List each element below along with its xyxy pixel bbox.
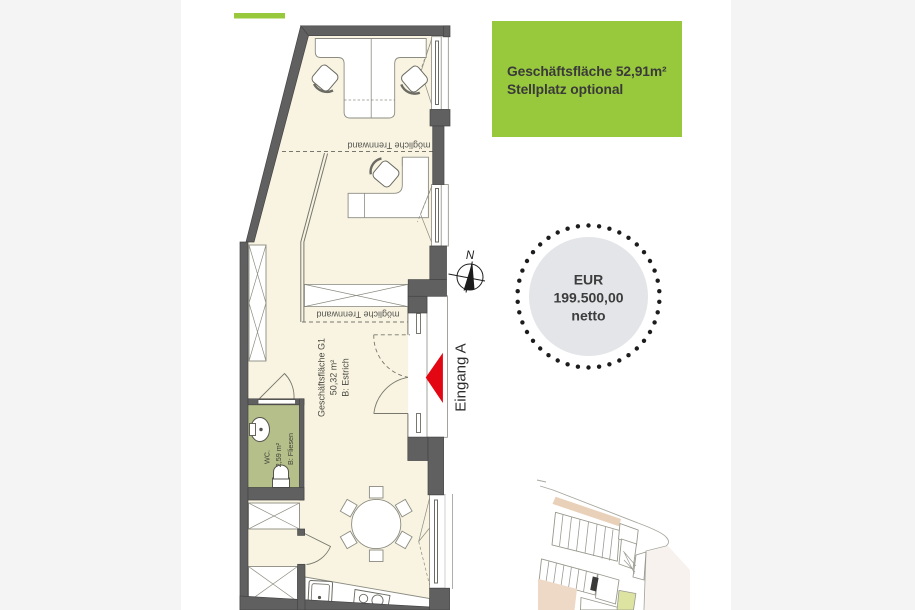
svg-text:2,59 m²: 2,59 m² bbox=[274, 442, 283, 467]
svg-text:EUR: EUR bbox=[574, 272, 604, 288]
svg-text:Geschäftsfläche G1: Geschäftsfläche G1 bbox=[317, 338, 327, 417]
svg-text:mögliche Trennwand: mögliche Trennwand bbox=[316, 310, 399, 320]
svg-text:Geschäftsfläche 52,91m²: Geschäftsfläche 52,91m² bbox=[507, 64, 667, 79]
svg-text:Eingang A: Eingang A bbox=[453, 343, 470, 411]
svg-text:199.500,00: 199.500,00 bbox=[553, 290, 623, 306]
svg-text:50,32 m²: 50,32 m² bbox=[329, 360, 339, 396]
svg-text:N: N bbox=[466, 250, 475, 262]
svg-text:B: Estrich: B: Estrich bbox=[341, 358, 351, 397]
svg-text:WC.: WC. bbox=[263, 450, 272, 464]
svg-text:netto: netto bbox=[571, 308, 605, 324]
svg-text:mögliche Trennwand: mögliche Trennwand bbox=[347, 141, 430, 151]
svg-text:B: Fliesen: B: Fliesen bbox=[286, 433, 295, 465]
svg-text:Stellplatz optional: Stellplatz optional bbox=[507, 82, 623, 97]
